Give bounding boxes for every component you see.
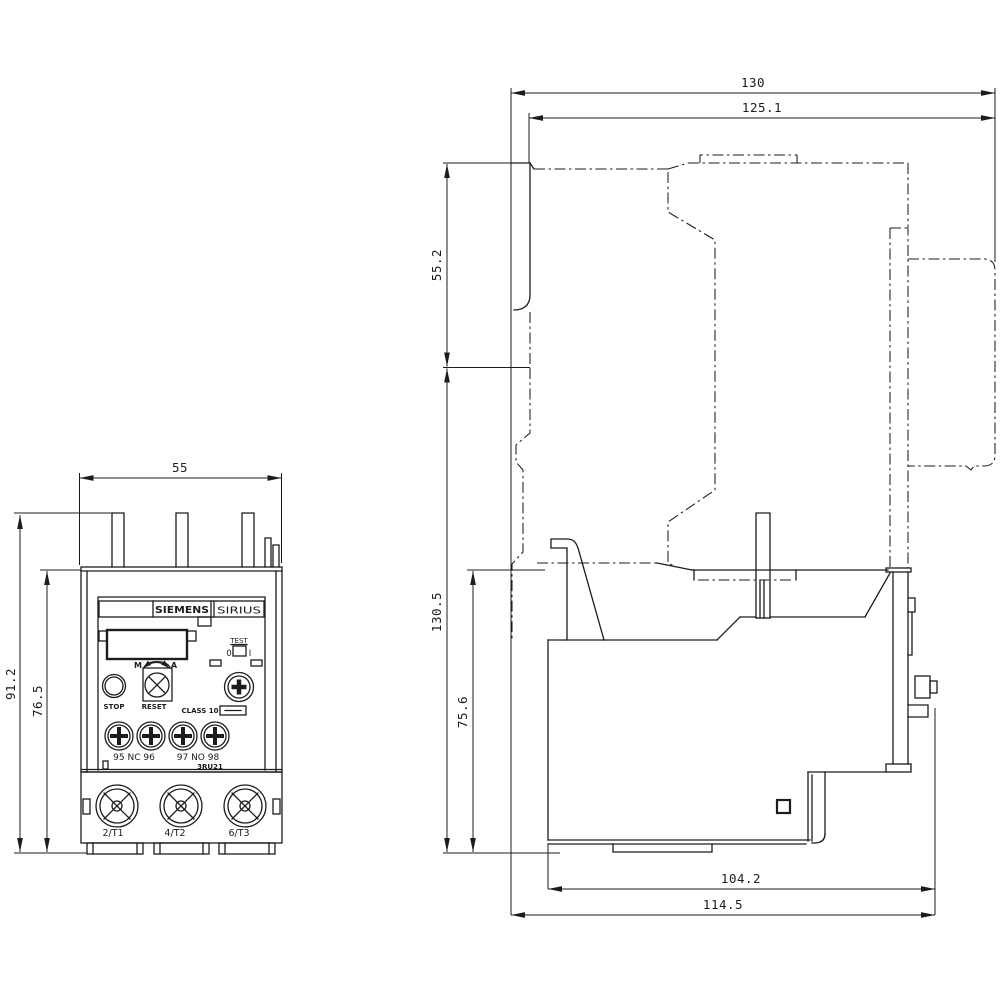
terminal-t1-label: 2/T1 [102,828,123,839]
class-plate [220,706,246,715]
aux-screw-95[interactable] [105,722,133,750]
main-terminal-block: 2/T1 4/T2 6/T3 [81,770,282,844]
dim-total-height: 91.2 [3,668,18,700]
relay-dimension-drawing: SIEMENS SIRIUS TEST 0 I M A [0,0,1000,1000]
din-release-square [777,800,790,813]
rating-label-window [99,630,196,659]
front-bottom-feet [87,843,275,854]
aux-screw-96[interactable] [137,722,165,750]
dim-width: 55 [172,460,188,475]
adjustment-knob[interactable] [915,676,930,698]
manual-label: M [134,661,142,670]
trip-plunger [756,513,770,618]
aux-nc-label: 95 NC 96 [113,753,155,763]
test-label: TEST [229,637,248,645]
side-dimensions: 130 125.1 55.2 130.5 75.6 104.2 114.5 [429,75,995,915]
rear-mounting-strip [511,163,530,367]
brand-label-strip: SIEMENS SIRIUS [99,601,264,626]
brand-text: SIEMENS [155,605,209,616]
terminal-cover-box [908,259,995,470]
aux-screw-98[interactable] [201,722,229,750]
dim-lower-height: 130.5 [429,592,444,632]
front-top-tabs [112,513,279,567]
current-dial[interactable] [225,673,254,702]
vent-slot-right [251,660,262,666]
dim-lower-depth: 114.5 [703,897,743,912]
test-switch[interactable]: TEST 0 I [226,637,251,659]
technical-drawing-canvas: SIEMENS SIRIUS TEST 0 I M A [0,0,1000,1000]
main-screw-t2[interactable] [160,785,202,827]
stop-button[interactable] [103,675,126,698]
relay-solid-outline [548,513,937,852]
test-off-label: 0 [226,649,231,659]
coding-notch [103,761,108,769]
series-text: SIRIUS [217,606,261,617]
relay-front-panel [886,568,937,772]
class-rating-label: CLASS 10 [182,707,219,715]
stop-label: STOP [104,703,125,711]
main-screw-t1[interactable] [96,785,138,827]
aux-terminal-screws[interactable] [105,722,229,750]
side-view: 130 125.1 55.2 130.5 75.6 104.2 114.5 [429,75,995,915]
terminal-t2-label: 4/T2 [164,828,185,839]
main-screw-t3[interactable] [224,785,266,827]
side-extension-lines [443,88,995,915]
dim-body-height: 76.5 [30,685,45,717]
relay-bottom-foot [613,844,712,852]
dim-relay-depth: 104.2 [721,871,761,886]
test-on-label: I [249,649,252,659]
aux-no-label: 97 NO 98 [177,753,220,763]
dim-upper-height: 55.2 [429,249,444,281]
test-slider[interactable] [233,646,246,656]
dim-inner-depth: 125.1 [742,100,782,115]
terminal-t3-label: 6/T3 [228,828,249,839]
reset-knob[interactable] [143,662,172,701]
reset-label: RESET [142,703,167,711]
front-view: SIEMENS SIRIUS TEST 0 I M A [3,460,282,854]
dim-total-depth: 130 [741,75,765,90]
vent-slot-left [210,660,221,666]
dim-relay-height: 75.6 [455,696,470,728]
contactor-phantom-outline [512,155,995,640]
aux-screw-97[interactable] [169,722,197,750]
relay-mounting-hook [551,539,604,640]
relay-lower-block [808,772,886,843]
